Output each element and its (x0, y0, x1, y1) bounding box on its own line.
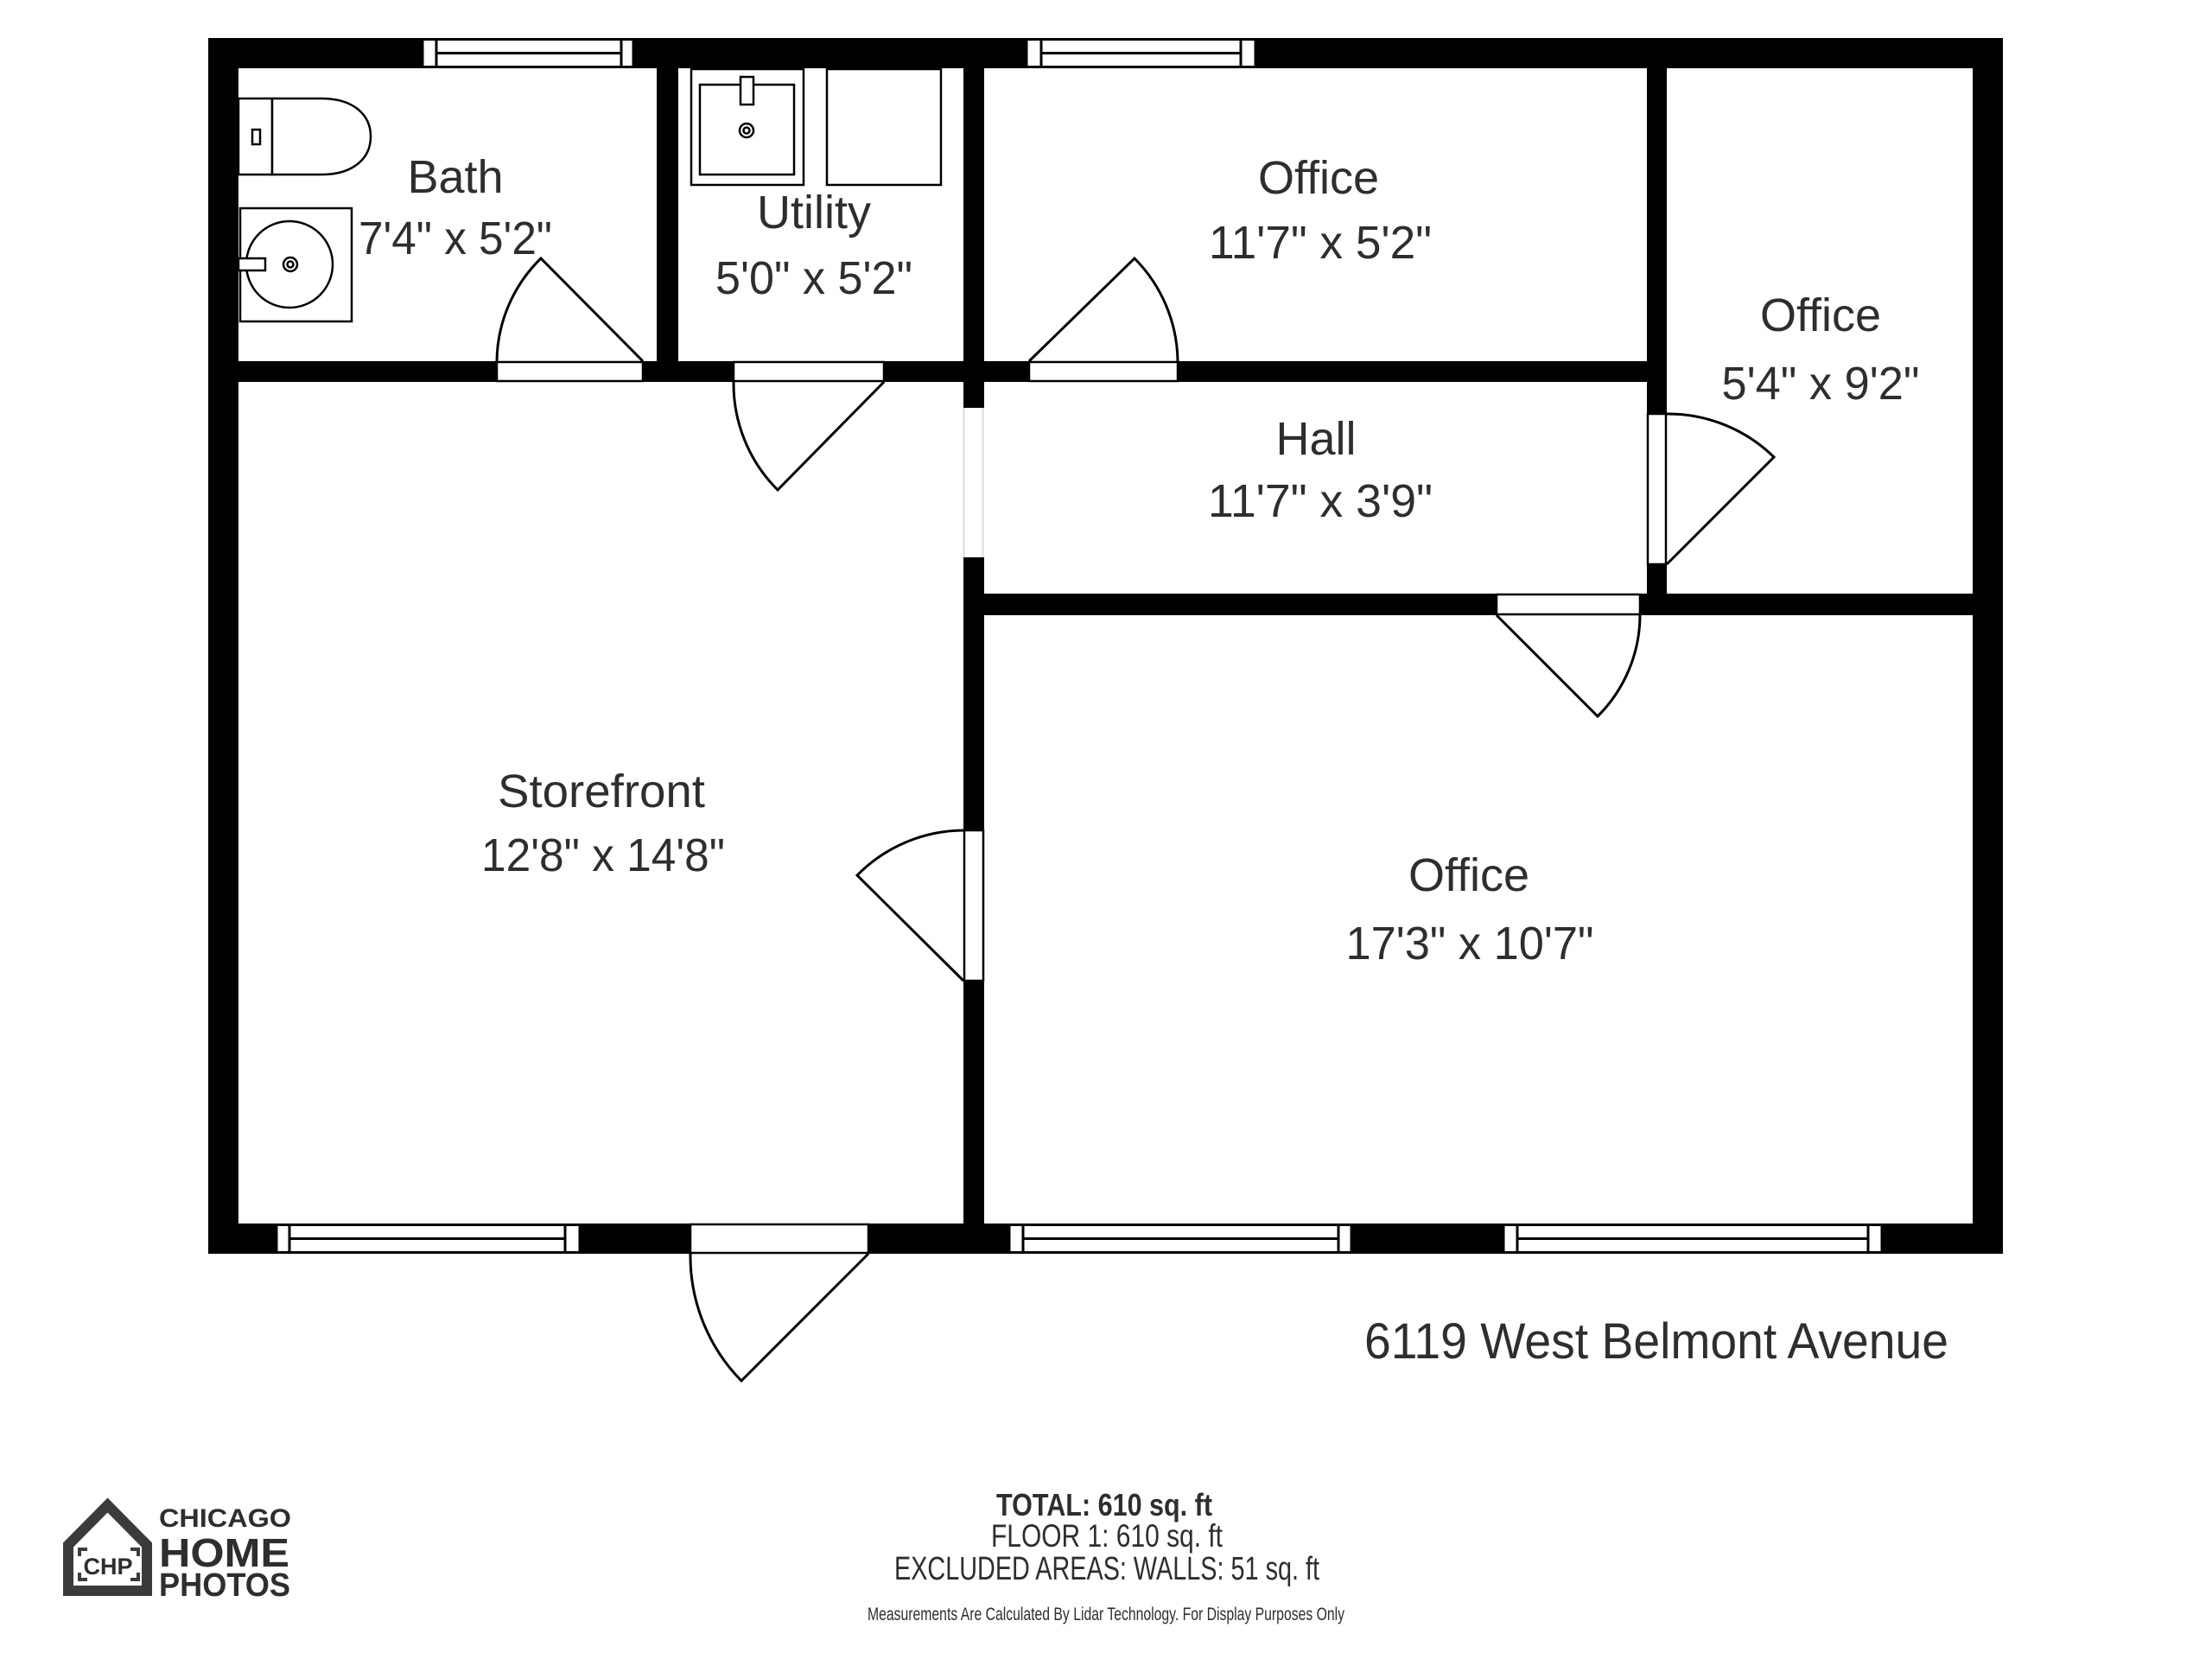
svg-text:Storefront: Storefront (498, 766, 705, 817)
svg-text:5'4" x 9'2": 5'4" x 9'2" (1722, 358, 1920, 410)
svg-text:Bath: Bath (407, 151, 503, 203)
svg-text:EXCLUDED AREAS: WALLS: 51 sq.: EXCLUDED AREAS: WALLS: 51 sq. ft (894, 1551, 1319, 1587)
svg-text:Office: Office (1760, 289, 1881, 341)
svg-text:Measurements Are Calculated By: Measurements Are Calculated By Lidar Tec… (868, 1605, 1344, 1624)
svg-text:FLOOR 1: 610 sq. ft: FLOOR 1: 610 sq. ft (991, 1518, 1224, 1554)
svg-text:11'7" x 5'2": 11'7" x 5'2" (1209, 217, 1432, 269)
svg-text:11'7" x 3'9": 11'7" x 3'9" (1208, 475, 1433, 527)
svg-text:17'3" x 10'7": 17'3" x 10'7" (1346, 918, 1594, 969)
svg-text:Office: Office (1408, 849, 1529, 901)
svg-text:Office: Office (1258, 152, 1379, 204)
svg-text:CHICAGO: CHICAGO (159, 1504, 291, 1533)
svg-text:PHOTOS: PHOTOS (159, 1567, 290, 1604)
svg-text:CHP: CHP (83, 1554, 132, 1580)
svg-text:12'8" x 14'8": 12'8" x 14'8" (481, 829, 725, 881)
svg-text:5'0" x 5'2": 5'0" x 5'2" (715, 252, 912, 304)
svg-text:TOTAL: 610 sq. ft: TOTAL: 610 sq. ft (996, 1487, 1212, 1522)
svg-text:7'4" x 5'2": 7'4" x 5'2" (359, 213, 552, 264)
svg-text:6119 West Belmont Avenue: 6119 West Belmont Avenue (1364, 1313, 1948, 1370)
svg-text:Hall: Hall (1275, 413, 1356, 465)
svg-text:Utility: Utility (757, 187, 871, 238)
